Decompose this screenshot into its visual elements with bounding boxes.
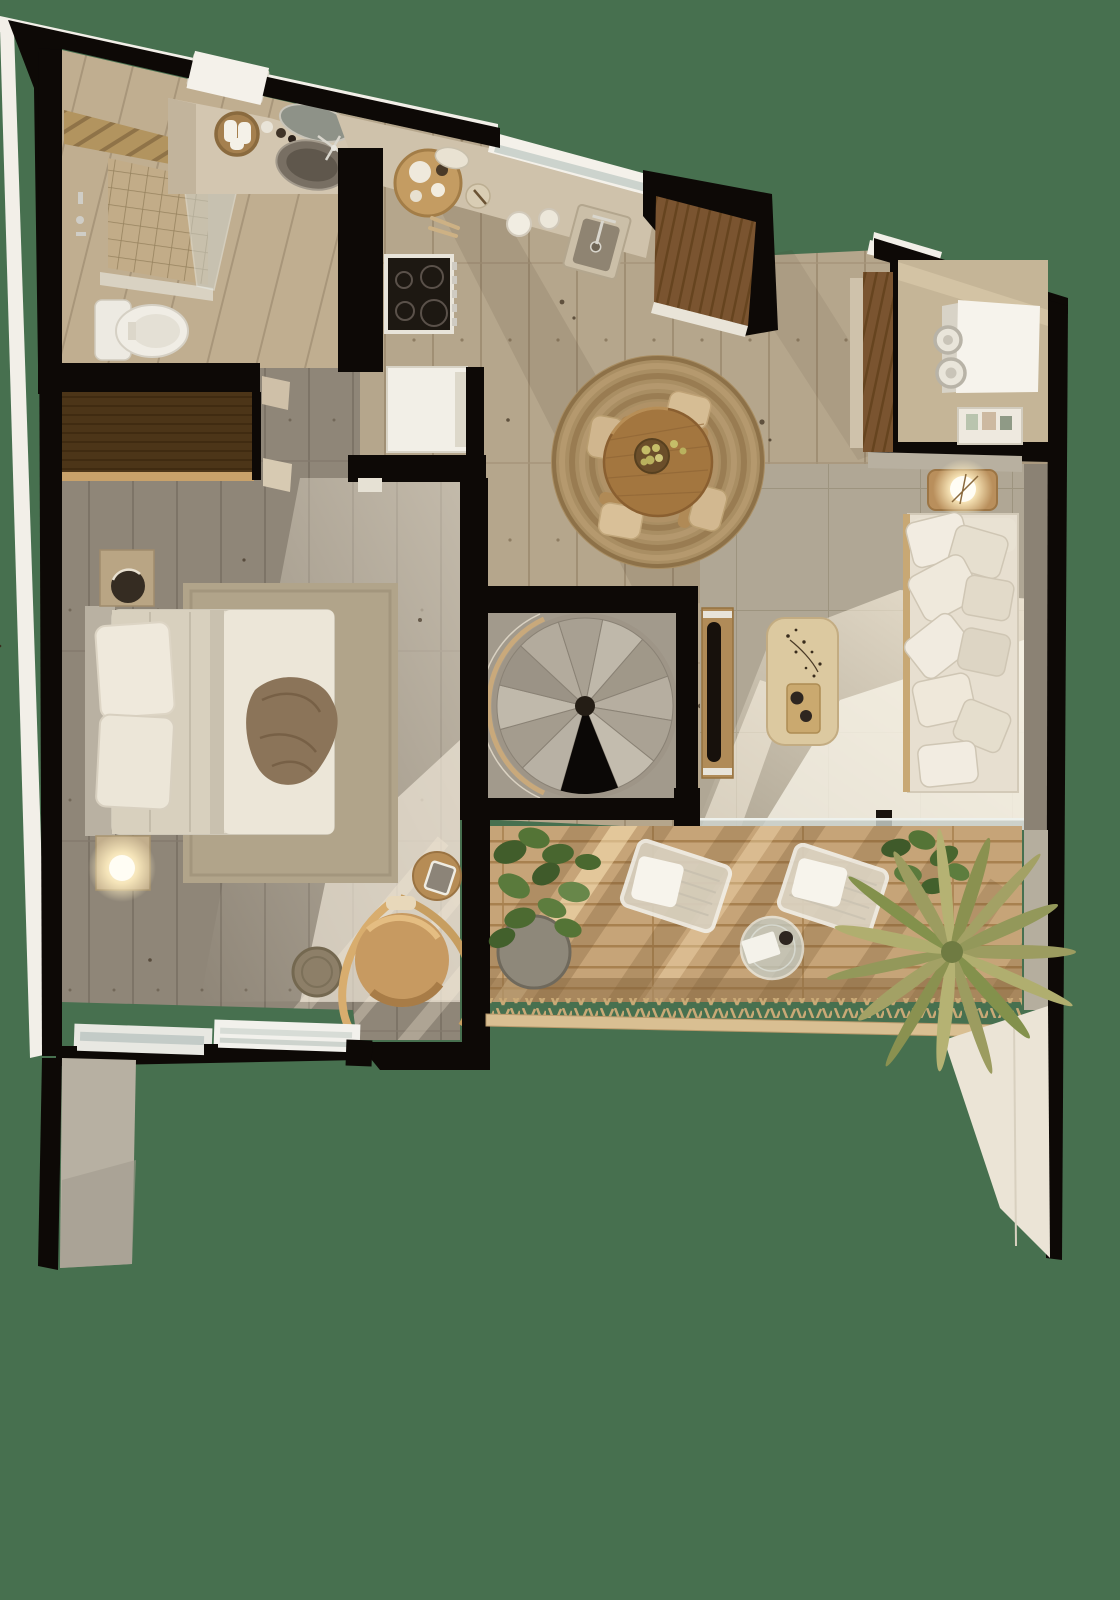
mug (539, 209, 559, 229)
floor-plan-canvas (0, 0, 1120, 1600)
walnut-side-panel (863, 272, 893, 452)
glass-side-table (741, 917, 803, 979)
entry-wall-face (263, 458, 292, 492)
living-right-wall-face (1024, 464, 1048, 830)
refrigerator-side (455, 372, 467, 447)
cup (791, 692, 804, 705)
wall-bath-bottom (38, 363, 260, 394)
washer-dryer (956, 300, 1040, 393)
wall-stairs-left (460, 478, 488, 818)
wall-hall-stub (348, 455, 486, 482)
stair-room (463, 590, 697, 818)
entry-wall-face (262, 376, 290, 410)
table-lamp-lit (109, 855, 135, 881)
cup (779, 931, 793, 945)
balcony-underside (357, 1042, 490, 1070)
pillow (917, 740, 979, 788)
washer-door-inner (943, 335, 953, 345)
door-jamb (674, 788, 700, 828)
pillow (961, 574, 1015, 622)
glass-door-highlight (700, 818, 1024, 821)
fridge-nook (643, 170, 778, 337)
left-leg-edge (38, 1058, 62, 1270)
soap-bottle (276, 128, 286, 138)
sofa (901, 511, 1018, 792)
wall-stairs-top (484, 586, 698, 613)
chair-hook (386, 896, 416, 910)
dryer-door-inner (946, 368, 957, 379)
cooktop (384, 254, 457, 334)
floor-plan-svg (0, 0, 1120, 1600)
pillow (95, 622, 175, 719)
wall-stairs-right (676, 610, 698, 804)
bed-duvet-seam (210, 610, 224, 834)
wall-fridge-side (466, 367, 484, 459)
wall-bath-kitchen (338, 148, 383, 372)
pillow (96, 714, 175, 810)
wardrobe-plinth (62, 472, 254, 481)
threshold (358, 478, 382, 492)
laundry-closet (850, 260, 1048, 472)
window-mullion (346, 1040, 373, 1067)
pillow (956, 626, 1012, 677)
bench-cap (703, 768, 732, 775)
bench-bolster (707, 622, 721, 762)
vanity-side (168, 98, 196, 194)
dining-area (551, 355, 765, 569)
table-tray (787, 684, 820, 733)
bench-cap (703, 611, 732, 618)
soap-bottle (261, 121, 273, 133)
wall-stairs-bottom (460, 798, 698, 820)
mug (507, 212, 531, 236)
panel-counter-face (850, 278, 863, 448)
wardrobe-edge (252, 392, 261, 480)
stair-center-pole (575, 696, 595, 716)
window-mullion (204, 1044, 218, 1062)
wall-left (38, 48, 62, 1056)
basket (293, 948, 341, 996)
wardrobe-shade (62, 392, 254, 480)
wall-bench (702, 608, 733, 778)
cup (800, 710, 812, 722)
palm-crown (941, 941, 963, 963)
